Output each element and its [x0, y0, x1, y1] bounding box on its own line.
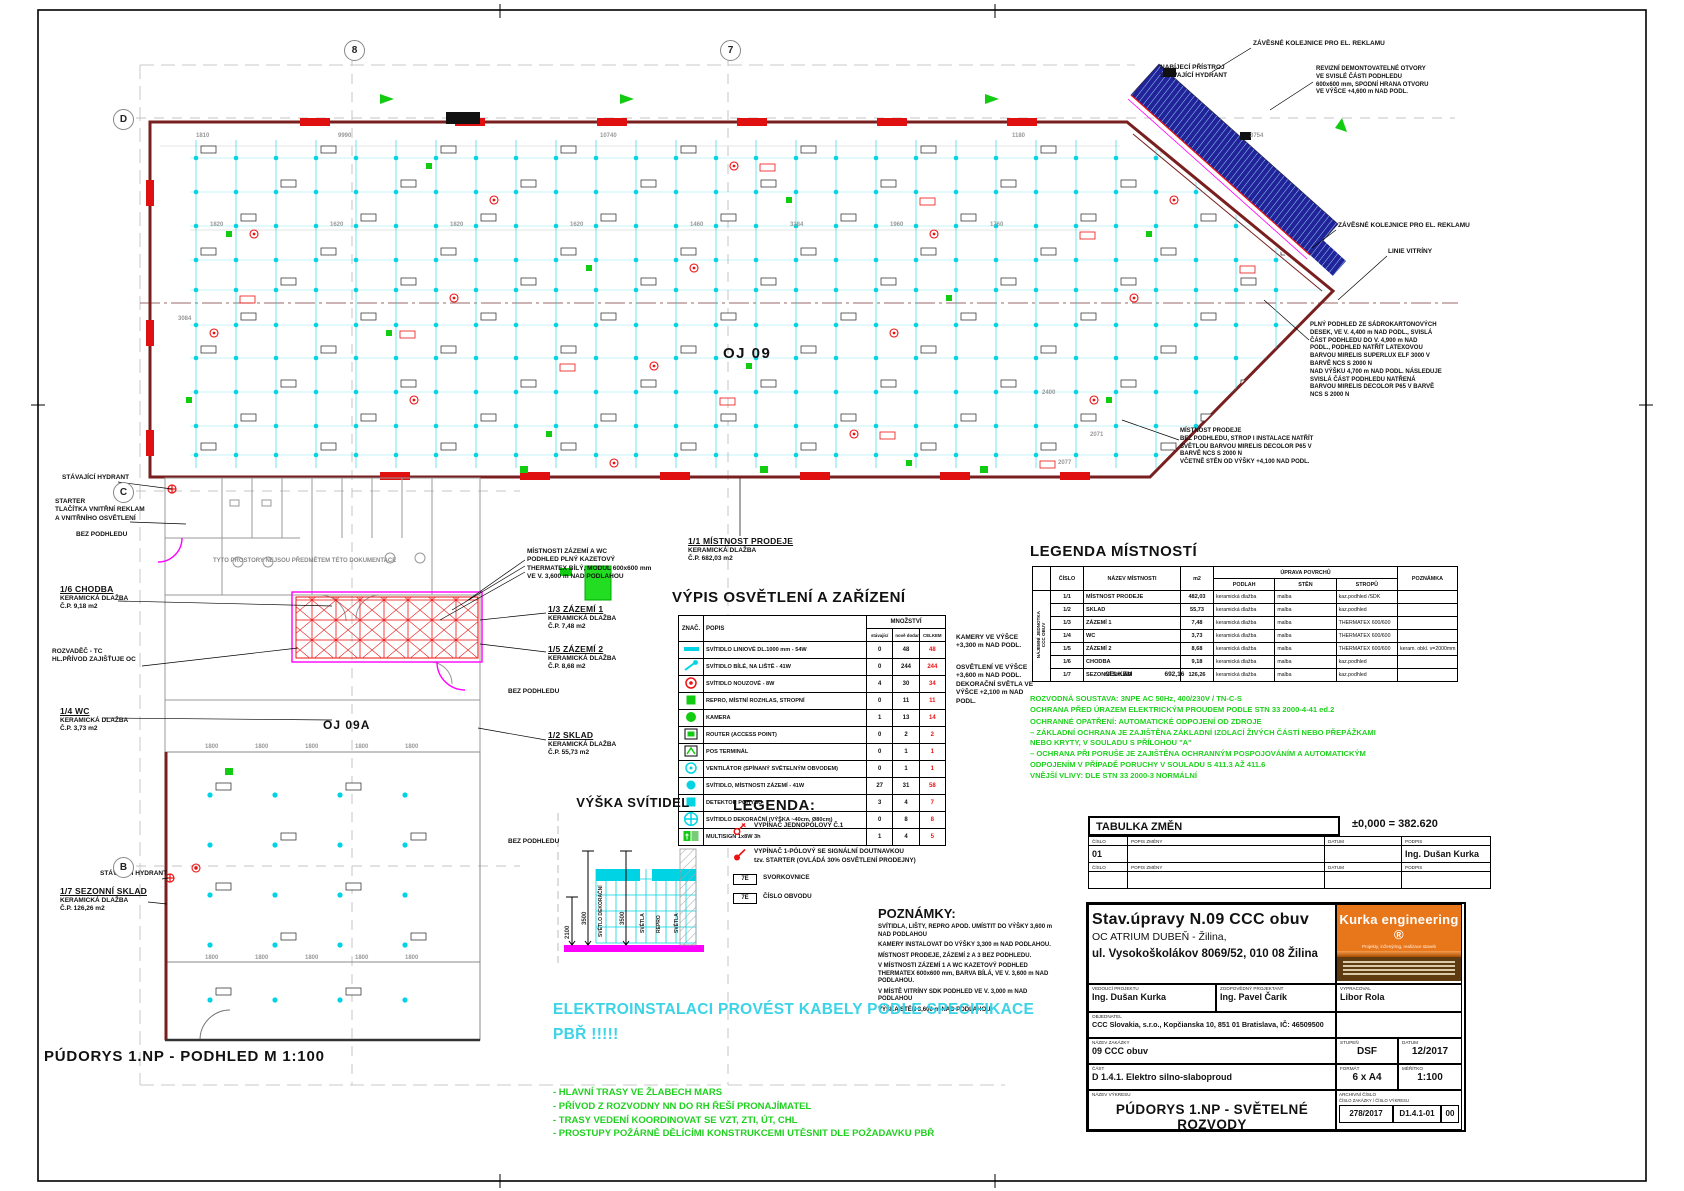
room-cell: 1/3 — [1051, 617, 1084, 630]
pos-terminal-icon — [679, 744, 704, 761]
fixture-description: KAMERA — [704, 710, 867, 727]
fixture-description: SVÍTIDLO NOUZOVÉ - 8W — [704, 676, 867, 693]
fixture-description: POS TERMINÁL — [704, 744, 867, 761]
col-walls: STĚN — [1275, 579, 1336, 591]
col-floor: PODLAH — [1214, 579, 1275, 591]
change-col-date: DATUM — [1325, 837, 1402, 846]
electrical-note-line: – OCHRANA PŘI PORUŠE JE ZAJIŠTĚNA OCHRAN… — [1030, 749, 1466, 770]
room-cell: SKLAD — [1084, 604, 1181, 617]
room-cell: 1/2 — [1051, 604, 1084, 617]
camera-icon — [679, 710, 704, 727]
fixture-qty: 1 — [893, 761, 919, 778]
fixture-description: VENTILÁTOR (SPÍNANÝ SVĚTELNÝM OBVODEM) — [704, 761, 867, 778]
room-cell: 8,68 — [1181, 643, 1214, 656]
legend-item-label: ČÍSLO OBVODU — [763, 893, 812, 902]
fixture-heights-labels: 350035002100SVĚTLO DEKORAČNÍSVĚTLAREPROS… — [552, 813, 714, 967]
fixture-description: SVÍTIDLO BÍLÉ, NA LIŠTĚ - 41W — [704, 659, 867, 676]
room-cell: THERMATEX 600/600 — [1336, 630, 1397, 643]
room-cell — [1398, 656, 1458, 669]
electrical-note-line: VNĚJŠÍ VLIVY: DLE STN 33 2000-3 NORMÁLNÍ — [1030, 771, 1466, 781]
fixture-row: KAMERA11314 — [679, 710, 946, 727]
ceiling-light-icon — [679, 778, 704, 795]
room-cell: keramická dlažba — [1214, 630, 1275, 643]
fixture-row: VENTILÁTOR (SPÍNANÝ SVĚTELNÝM OBVODEM)01… — [679, 761, 946, 778]
field-responsible-designer: ZODPOVĚDNÝ PROJEKTANT Ing. Pavel Čarík — [1216, 984, 1336, 1012]
room-row: 1/5ZÁZEMÍ 28,68keramická dlažbamalbaTHER… — [1033, 643, 1458, 656]
fixture-qty: 1 — [919, 761, 945, 778]
project-title-cell: Stav.úpravy N.09 CCC obuv OC ATRIUM DUBE… — [1088, 904, 1336, 984]
room-cell: WC — [1084, 630, 1181, 643]
col-new: nově dodané — [893, 629, 919, 642]
room-cell: MÍSTNOST PRODEJE — [1084, 591, 1181, 604]
room-cell: THERMATEX 600/600 — [1336, 617, 1397, 630]
room-cell: malba — [1275, 617, 1336, 630]
tenant-unit-label: NÁJEMNÍ JEDNOTKA CCC OBUV — [1036, 611, 1046, 658]
col-total: CELKEM — [919, 629, 945, 642]
legend-item: 7EČÍSLO OBVODU — [733, 893, 948, 904]
col-ceiling: STROPŮ — [1336, 579, 1397, 591]
legend-item-label: VYPÍNAČ JEDNOPÓLOVÝ Č.1 — [754, 822, 843, 831]
room-cell: malba — [1275, 604, 1336, 617]
sheet-bottom-title: PÚDORYS 1.NP - PODHLED M 1:100 — [44, 1048, 325, 1065]
field-drawing-title: NÁZEV VÝKRESU PÚDORYS 1.NP - SVĚTELNÉ RO… — [1088, 1090, 1336, 1130]
fixture-qty: 13 — [893, 710, 919, 727]
height-dimension: 3500 — [582, 912, 588, 925]
fixture-row: ROUTER (ACCESS POINT)022 — [679, 727, 946, 744]
fixture-row: POS TERMINÁL011 — [679, 744, 946, 761]
change-col-description: POPIS ZMĚNY — [1128, 837, 1325, 846]
room-row: 1/3ZÁZEMÍ 17,48keramická dlažbamalbaTHER… — [1033, 617, 1458, 630]
fan-icon — [679, 761, 704, 778]
fixture-qty: 2 — [919, 727, 945, 744]
site-note-line: - TRASY VEDENÍ KOORDINOVAT SE VZT, ZTI, … — [553, 1114, 934, 1128]
room-cell: keramická dlažba — [1214, 669, 1275, 682]
col-room-number: ČÍSLO — [1051, 567, 1084, 591]
height-dimension: 2100 — [565, 926, 571, 939]
site-notes: - HLAVNÍ TRASY VE ŽLABECH MARS- PŘÍVOD Z… — [553, 1086, 934, 1141]
col-surfaces: ÚPRAVA POVRCHŮ — [1214, 567, 1398, 579]
field-project-lead: VEDOUCÍ PROJEKTU Ing. Dušan Kurka — [1088, 984, 1216, 1012]
title-block: Stav.úpravy N.09 CCC obuv OC ATRIUM DUBE… — [1086, 902, 1466, 1132]
room-cell: 1/4 — [1051, 630, 1084, 643]
height-dimension: 3500 — [620, 912, 626, 925]
fixture-description: REPRO, MÍSTNÍ ROZHLAS, STROPNÍ — [704, 693, 867, 710]
room-cell: malba — [1275, 591, 1336, 604]
router-icon — [679, 727, 704, 744]
field-part: ČÁST D 1.4.1. Elektro silno-slaboproud — [1088, 1064, 1336, 1090]
note-line: SVÍTIDLA, LIŠTY, REPRO APOD. UMÍSTIT DO … — [878, 924, 1058, 939]
electrical-note-line: – ZÁKLADNÍ OCHRANA JE ZAJIŠTĚNA ZÁKLADNÍ… — [1030, 728, 1466, 749]
room-cell: kaz.podhled — [1336, 604, 1397, 617]
field-client: OBJEDNATEL CCC Slovakia, s.r.o., Kopčian… — [1088, 1012, 1336, 1038]
changes-table: ČÍSLO POPIS ZMĚNY DATUM PODPIS 01 Ing. D… — [1088, 836, 1491, 889]
room-cell: ZÁZEMÍ 1 — [1084, 617, 1181, 630]
fixture-row: REPRO, MÍSTNÍ ROZHLAS, STROPNÍ01111 — [679, 693, 946, 710]
fixture-qty: 2 — [893, 727, 919, 744]
fixture-qty: 1 — [919, 744, 945, 761]
fixture-qty: 1 — [893, 744, 919, 761]
field-drawn-by: VYPRACOVAL Libor Rola — [1336, 984, 1462, 1012]
room-cell: kaz.podhled — [1336, 669, 1397, 682]
fixture-qty: 30 — [893, 676, 919, 693]
room-cell: 1/7 — [1051, 669, 1084, 682]
switch-starter-icon — [733, 848, 748, 866]
room-cell — [1398, 617, 1458, 630]
electrical-note-line: OCHRANA PŘED ÚRAZEM ELEKTRICKÝM PROUDEM … — [1030, 705, 1466, 715]
logo-contact-block — [1337, 957, 1461, 981]
room-cell: 55,73 — [1181, 604, 1214, 617]
room-row: NÁJEMNÍ JEDNOTKA CCC OBUV1/1MÍSTNOST PRO… — [1033, 591, 1458, 604]
electrical-note-line: OCHRANNÉ OPATŘENÍ: AUTOMATICKÉ ODPOJENÍ … — [1030, 717, 1466, 727]
fixture-row: SVÍTIDLO NOUZOVÉ - 8W43034 — [679, 676, 946, 693]
field-format: FORMÁT 6 x A4 — [1336, 1064, 1398, 1090]
fixture-type-label: REPRO — [656, 915, 662, 933]
room-cell: 1/1 — [1051, 591, 1084, 604]
col-remark: POZNÁMKA — [1398, 567, 1458, 591]
rooms-total: CELKEM692,16 — [1105, 671, 1184, 678]
company-logo: Kurka engineering ® Projekty, inženýring… — [1336, 904, 1462, 984]
room-cell: 126,26 — [1181, 669, 1214, 682]
change-row-number: 01 — [1089, 846, 1128, 863]
room-cell: malba — [1275, 630, 1336, 643]
legend-title: LEGENDA: — [733, 797, 948, 814]
logo-tagline: Projekty, inženýring, realizace staveb — [1337, 944, 1461, 949]
room-cell — [1398, 669, 1458, 682]
fixture-row: SVÍTIDLO, MÍSTNOSTI ZÁZEMÍ - 41W273158 — [679, 778, 946, 795]
emergency-light-icon — [679, 676, 704, 693]
fixture-row: SVÍTIDLO BÍLÉ, NA LIŠTĚ - 41W0244244 — [679, 659, 946, 676]
circuit-code-box: 7E — [733, 893, 757, 904]
project-title: Stav.úpravy N.09 CCC obuv — [1092, 911, 1332, 929]
fixture-qty: 4 — [867, 676, 893, 693]
legend-item: VYPÍNAČ JEDNOPÓLOVÝ Č.1 — [733, 822, 948, 840]
change-col-signature: PODPIS — [1402, 837, 1491, 846]
room-row: 1/4WC3,73keramická dlažbamalbaTHERMATEX … — [1033, 630, 1458, 643]
site-note-line: - PROSTUPY POŽÁRNĚ DĚLÍCÍMI KONSTRUKCEMI… — [553, 1127, 934, 1141]
room-cell: malba — [1275, 656, 1336, 669]
fixture-qty: 11 — [919, 693, 945, 710]
fixture-qty: 0 — [867, 642, 893, 659]
fixture-qty: 14 — [919, 710, 945, 727]
room-cell: keramická dlažba — [1214, 656, 1275, 669]
electrical-system-notes: ROZVODNÁ SOUSTAVA: 3NPE AC 50Hz, 400/230… — [1030, 694, 1466, 782]
fixture-description: ROUTER (ACCESS POINT) — [704, 727, 867, 744]
field-stage: STUPEŇ DSF — [1336, 1038, 1398, 1064]
fixture-type-label: SVĚTLA — [674, 913, 680, 933]
drawing-number: D1.4.1-01 — [1393, 1105, 1441, 1123]
fixture-qty: 0 — [867, 744, 893, 761]
field-blank — [1336, 1012, 1462, 1038]
fixture-type-label: SVĚTLA — [640, 913, 646, 933]
fixture-heights-title: VÝŠKA SVÍTIDEL — [552, 795, 714, 810]
room-cell: keramická dlažba — [1214, 643, 1275, 656]
drawing-title: PÚDORYS 1.NP - SVĚTELNÉ ROZVODY — [1092, 1102, 1332, 1131]
room-cell: malba — [1275, 643, 1336, 656]
legend-item-label: VYPÍNAČ 1-PÓLOVÝ SE SIGNÁLNÍ DOUTNAVKOU … — [754, 848, 916, 865]
fixture-qty: 0 — [867, 693, 893, 710]
room-row: 1/7SEZONNÍ SKLAD126,26keramická dlažbama… — [1033, 669, 1458, 682]
fixture-qty: 34 — [919, 676, 945, 693]
room-cell: 1/6 — [1051, 656, 1084, 669]
col-quantity: MNOŽSTVÍ — [867, 616, 946, 629]
room-row: 1/6CHODBA9,18keramická dlažbamalbakaz.po… — [1033, 656, 1458, 669]
note-line: MÍSTNOST PRODEJE, ZÁZEMÍ 2 A 3 BEZ PODHL… — [878, 953, 1058, 961]
fixture-qty: 244 — [919, 659, 945, 676]
fixture-qty: 1 — [867, 710, 893, 727]
change-row-date — [1325, 846, 1402, 863]
fixture-qty: 58 — [919, 778, 945, 795]
room-cell: 3,73 — [1181, 630, 1214, 643]
track-spot-icon — [679, 659, 704, 676]
field-date: DATUM 12/2017 — [1398, 1038, 1462, 1064]
change-col-number: ČÍSLO — [1089, 837, 1128, 846]
fixture-qty: 11 — [893, 693, 919, 710]
revision-number: 00 — [1441, 1105, 1459, 1123]
room-cell: THERMATEX 600/600 — [1336, 643, 1397, 656]
rooms-table: ČÍSLO NÁZEV MÍSTNOSTI m2 ÚPRAVA POVRCHŮ … — [1032, 566, 1458, 682]
change-row-signature: Ing. Dušan Kurka — [1402, 846, 1491, 863]
fixture-row: SVÍTIDLO LINIOVÉ DL.1000 mm - 54W04848 — [679, 642, 946, 659]
switch-single-icon — [733, 822, 748, 840]
fixture-qty: 31 — [893, 778, 919, 795]
note-line: KAMERY INSTALOVAT DO VÝŠKY 3,300 m NAD P… — [878, 942, 1058, 950]
job-number: 278/2017 — [1339, 1105, 1393, 1123]
project-subtitle: OC ATRIUM DUBEŇ - Žilina, — [1092, 931, 1332, 943]
drawing-sheet: { "sheet": { "bottom_title": "PÚDORYS 1.… — [0, 0, 1684, 1191]
field-job-name: NÁZEV ZAKÁZKY 09 CCC obuv — [1088, 1038, 1336, 1064]
fixture-type-label: SVĚTLO DEKORAČNÍ — [598, 885, 604, 937]
room-cell — [1398, 604, 1458, 617]
site-note-line: - HLAVNÍ TRASY VE ŽLABECH MARS — [553, 1086, 934, 1100]
electrical-note-line: ROZVODNÁ SOUSTAVA: 3NPE AC 50Hz, 400/230… — [1030, 694, 1466, 704]
fixture-qty: 27 — [867, 778, 893, 795]
total-label: CELKEM — [1105, 671, 1132, 678]
tenant-col — [1033, 567, 1051, 591]
speaker-icon — [679, 693, 704, 710]
fixture-description: SVÍTIDLO LINIOVÉ DL.1000 mm - 54W — [704, 642, 867, 659]
fixture-qty: 0 — [867, 761, 893, 778]
room-cell — [1398, 591, 1458, 604]
room-cell: kaz.podhled /SDK — [1336, 591, 1397, 604]
room-cell: 1/5 — [1051, 643, 1084, 656]
room-cell: keram. obkl. v=2000mm — [1398, 643, 1458, 656]
note-line: V MÍSTNOSTI ZÁZEMÍ 1 A WC KAZETOVÝ PODHL… — [878, 963, 1058, 986]
rooms-table-title: LEGENDA MÍSTNOSTÍ — [1030, 543, 1197, 560]
changes-table-title: TABULKA ZMĚN — [1088, 816, 1340, 836]
col-room-name: NÁZEV MÍSTNOSTI — [1084, 567, 1181, 591]
site-note-line: - PŘÍVOD Z ROZVODNY NN DO RH ŘEŠÍ PRONAJ… — [553, 1100, 934, 1114]
room-cell: ZÁZEMÍ 2 — [1084, 643, 1181, 656]
legend-item: 7ESVORKOVNICE — [733, 874, 948, 885]
legend-block: LEGENDA: VYPÍNAČ JEDNOPÓLOVÝ Č.1VYPÍNAČ … — [733, 797, 948, 904]
room-row: 1/2SKLAD55,73keramická dlažbamalbakaz.po… — [1033, 604, 1458, 617]
field-scale: MĚŘÍTKO 1:100 — [1398, 1064, 1462, 1090]
logo-name: Kurka engineering ® — [1337, 905, 1461, 942]
project-address: ul. Vysokoškolákov 8069/52, 010 08 Žilin… — [1092, 948, 1332, 960]
col-description: POPIS — [704, 616, 867, 642]
circuit-code-box: 7E — [733, 874, 757, 885]
col-symbol: ZNAČ. — [679, 616, 704, 642]
legend-item: VYPÍNAČ 1-PÓLOVÝ SE SIGNÁLNÍ DOUTNAVKOU … — [733, 848, 948, 866]
fixture-qty: 48 — [919, 642, 945, 659]
room-cell: keramická dlažba — [1214, 591, 1275, 604]
room-cell: 482,03 — [1181, 591, 1214, 604]
fixture-heights-diagram: VÝŠKA SVÍTIDEL 350035002100SVĚTLO DEKORA… — [552, 795, 714, 967]
room-cell: keramická dlažba — [1214, 617, 1275, 630]
level-datum: ±0,000 = 382.620 — [1352, 818, 1438, 830]
room-cell: 9,18 — [1181, 656, 1214, 669]
col-existing: stávající — [867, 629, 893, 642]
linear-light-icon — [679, 642, 704, 659]
fixture-qty: 0 — [867, 727, 893, 744]
fixtures-table-title: VÝPIS OSVĚTLENÍ A ZAŘÍZENÍ — [672, 589, 906, 606]
room-cell: kaz.podhled — [1336, 656, 1397, 669]
col-area: m2 — [1181, 567, 1214, 591]
fixture-qty: 48 — [893, 642, 919, 659]
legend-item-label: SVORKOVNICE — [763, 874, 810, 883]
notes-title: POZNÁMKY: — [878, 906, 1058, 921]
total-value: 692,16 — [1164, 671, 1184, 678]
change-row-description — [1128, 846, 1325, 863]
tenant-unit-cell: NÁJEMNÍ JEDNOTKA CCC OBUV — [1033, 591, 1051, 682]
fixture-qty: 244 — [893, 659, 919, 676]
fixture-description: SVÍTIDLO, MÍSTNOSTI ZÁZEMÍ - 41W — [704, 778, 867, 795]
room-cell: malba — [1275, 669, 1336, 682]
room-cell: CHODBA — [1084, 656, 1181, 669]
fixture-qty: 0 — [867, 659, 893, 676]
room-cell: keramická dlažba — [1214, 604, 1275, 617]
room-cell: 7,48 — [1181, 617, 1214, 630]
room-cell — [1398, 630, 1458, 643]
cable-spec-warning: ELEKTROINSTALACI PROVÉST KABELY PODLE SP… — [553, 998, 1034, 1048]
field-archive-number: ARCHIVNÍ ČÍSLO ČÍSLO ZAKÁZKY / ČÍSLO VÝK… — [1336, 1090, 1462, 1130]
